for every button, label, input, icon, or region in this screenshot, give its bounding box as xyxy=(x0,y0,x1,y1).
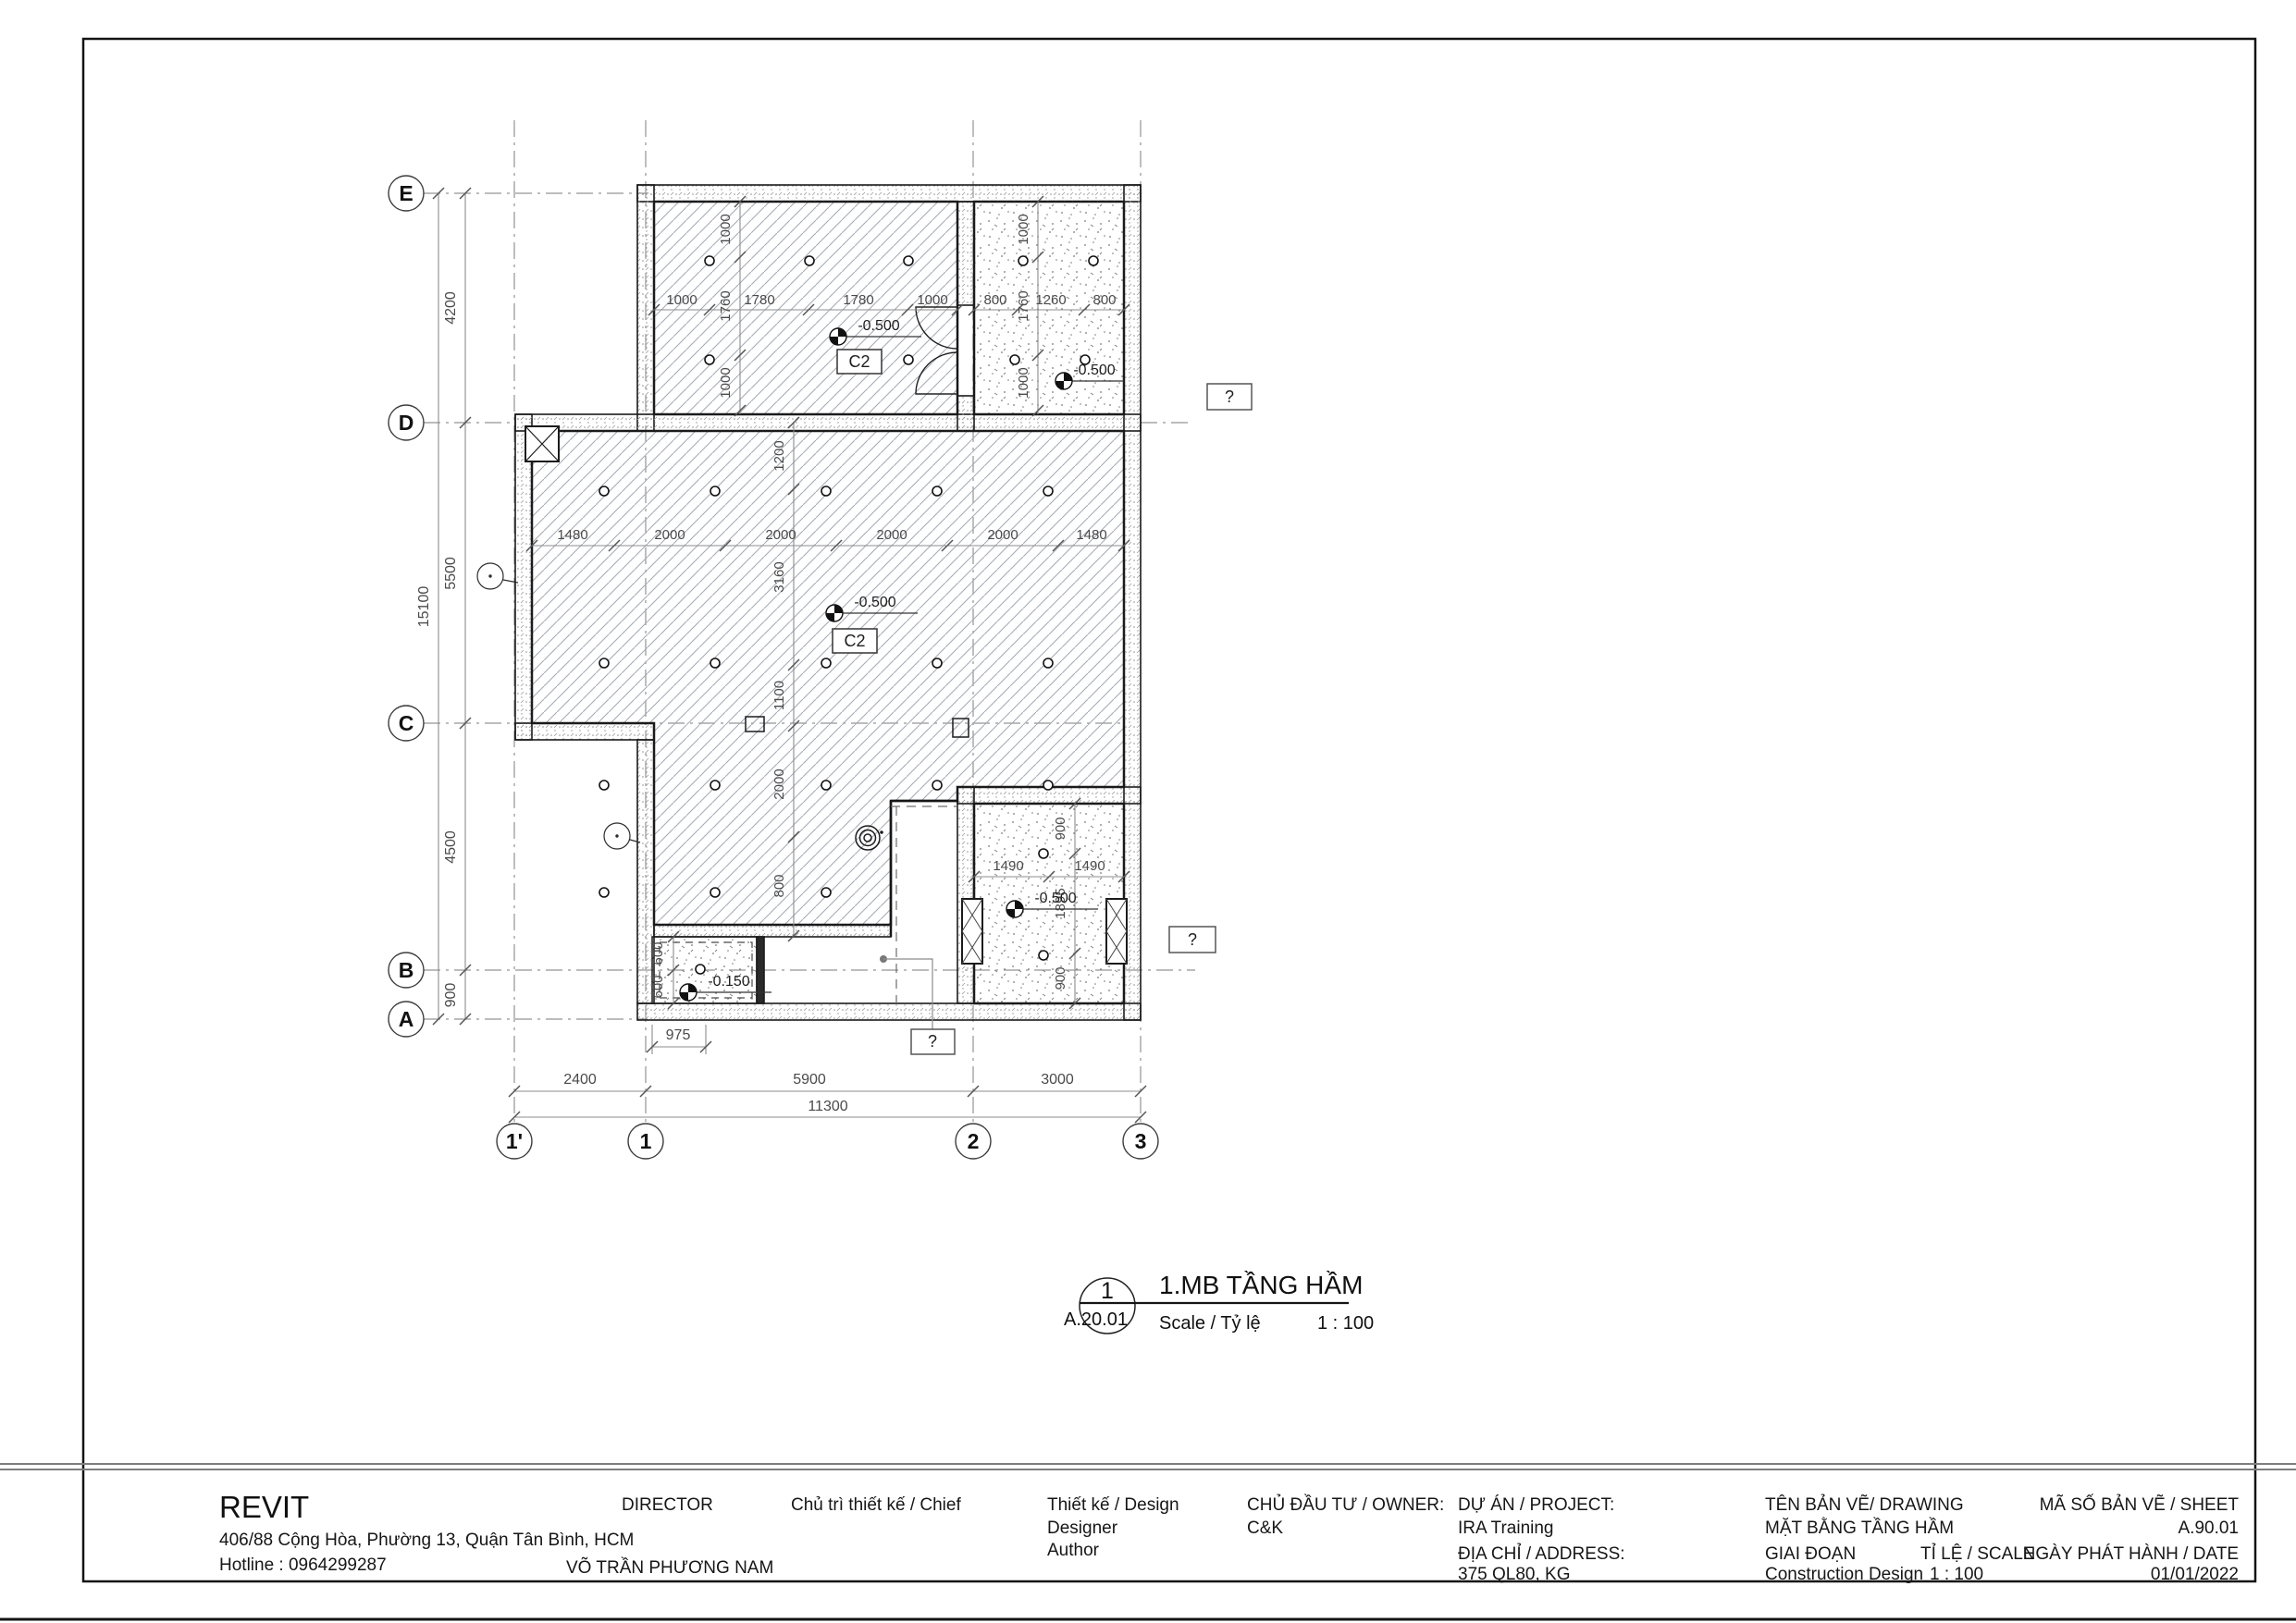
dim-hall-v1: 3160 xyxy=(772,561,787,592)
designer-label: Designer xyxy=(1047,1518,1118,1538)
grid-bubble-1: 1 xyxy=(640,1129,652,1153)
view-sheet-ref: A.20.01 xyxy=(1064,1309,1128,1330)
dim-tl-h2: 1780 xyxy=(843,292,873,308)
dim-tl-h3: 1000 xyxy=(917,292,947,308)
dim-975: 975 xyxy=(666,1027,691,1043)
wall-topblock-left xyxy=(637,185,654,431)
phase-value: Construction Design xyxy=(1765,1565,1923,1584)
date-label: NGÀY PHÁT HÀNH / DATE xyxy=(2023,1544,2239,1564)
project-name: IRA Training xyxy=(1458,1518,1554,1538)
dim-br-v2: 900 xyxy=(1053,966,1068,990)
dim-tr-h1: 1260 xyxy=(1035,292,1066,308)
wall-partition-lower xyxy=(957,396,974,431)
wall-tag-circle-2 xyxy=(604,823,640,849)
grid-bubble-D: D xyxy=(399,411,414,435)
question-tag-1: ? xyxy=(1225,387,1234,406)
owner-name: C&K xyxy=(1247,1518,1283,1538)
company-hotline: Hotline : 0964299287 xyxy=(219,1555,387,1575)
level-top-right: -0.500 xyxy=(1073,363,1115,378)
dim-hall-v0: 1200 xyxy=(772,440,787,471)
author-label: Author xyxy=(1047,1541,1100,1560)
dim-left-0: 4200 xyxy=(443,291,459,325)
dim-br-h0: 1490 xyxy=(993,858,1023,874)
grid-bubble-3: 3 xyxy=(1135,1129,1147,1153)
dim-hall-h0: 1480 xyxy=(557,527,587,543)
project-label: DỰ ÁN / PROJECT: xyxy=(1458,1495,1614,1515)
level-top-left: -0.500 xyxy=(858,318,899,334)
vent-louver-right xyxy=(1106,899,1127,964)
dim-bottom-0: 2400 xyxy=(563,1072,597,1088)
dim-br-v0: 900 xyxy=(1053,817,1068,840)
dim-hall-h1: 2000 xyxy=(654,527,685,543)
dim-left-1: 5500 xyxy=(443,557,459,590)
dim-hall-v3: 2000 xyxy=(772,768,787,799)
dim-hall-h2: 2000 xyxy=(765,527,796,543)
dim-hall-h5: 1480 xyxy=(1076,527,1106,543)
wall-bottom xyxy=(637,1003,1141,1020)
dim-tr-h2: 800 xyxy=(1092,292,1116,308)
floor-areas xyxy=(532,202,1124,1003)
address-value: 375 QL80, KG xyxy=(1458,1565,1570,1584)
dim-pit-v0: 600 xyxy=(650,941,666,965)
wall-top xyxy=(637,185,1141,202)
owner-label: CHỦ ĐẦU TƯ / OWNER: xyxy=(1247,1494,1444,1515)
level-hall: -0.500 xyxy=(854,595,895,610)
dim-tl-v1: 1760 xyxy=(718,290,734,321)
dim-bottom-1: 5900 xyxy=(793,1072,826,1088)
dim-tr-v1: 1760 xyxy=(1016,290,1031,321)
dim-hall-v2: 1100 xyxy=(772,681,787,710)
scale-value: 1 : 100 xyxy=(1930,1565,1983,1584)
title-block: REVIT 406/88 Cộng Hòa, Phường 13, Quận T… xyxy=(219,1490,2239,1584)
wall-tag-circle-1 xyxy=(477,563,518,589)
date-value: 01/01/2022 xyxy=(2151,1565,2239,1584)
sheet-border xyxy=(83,39,2255,1581)
wall-step-c xyxy=(515,723,654,740)
sheet-label: MÃ SỐ BẢN VẼ / SHEET xyxy=(2040,1494,2240,1515)
wall-room-br-left xyxy=(957,787,974,1003)
director-label: DIRECTOR xyxy=(622,1495,713,1515)
wall-left-mid xyxy=(515,414,532,740)
view-title-text: 1.MB TẦNG HẦM xyxy=(1159,1271,1363,1299)
dim-tl-v2: 1000 xyxy=(718,367,734,398)
column-tag-1: C2 xyxy=(848,352,870,371)
phase-label: GIAI ĐOẠN xyxy=(1765,1544,1856,1564)
view-scale-value: 1 : 100 xyxy=(1317,1313,1374,1334)
view-title: 1 A.20.01 1.MB TẦNG HẦM Scale / Tỷ lệ 1 … xyxy=(1064,1271,1374,1334)
drawing-name: MẶT BẰNG TẦNG HẦM xyxy=(1765,1518,1954,1538)
room-top-right-floor xyxy=(974,202,1124,414)
level-pit: -0.150 xyxy=(708,974,749,990)
view-number: 1 xyxy=(1101,1278,1114,1304)
chief-name: VÕ TRẦN PHƯƠNG NAM xyxy=(566,1557,773,1578)
basement-plan-drawing: 15100 4200 5500 4500 900 2400 5900 3000 … xyxy=(0,0,2296,1623)
shaft-column-box xyxy=(525,426,559,461)
grid-bubble-B: B xyxy=(399,958,414,982)
dim-tr-v2: 1000 xyxy=(1016,367,1031,398)
grid-bubble-E: E xyxy=(399,181,413,205)
dim-bottom-overall: 11300 xyxy=(808,1099,847,1114)
dim-hall-h3: 2000 xyxy=(876,527,907,543)
chief-label: Chủ trì thiết kế / Chief xyxy=(791,1495,961,1515)
dim-left-2: 4500 xyxy=(443,830,459,864)
sheet-frame xyxy=(0,39,2296,1619)
dim-hall-h4: 2000 xyxy=(987,527,1018,543)
dim-tr-v0: 1000 xyxy=(1016,214,1031,244)
scale-label: TỈ LỆ / SCALE xyxy=(1920,1543,2035,1564)
drawing-label: TÊN BẢN VẼ/ DRAWING xyxy=(1765,1494,1964,1515)
column-on-grid-c-2 xyxy=(953,719,969,737)
dim-pit-v1: 600 xyxy=(650,975,666,998)
address-label: ĐỊA CHỈ / ADDRESS: xyxy=(1458,1543,1625,1564)
room-top-left-floor xyxy=(654,202,957,414)
grid-bubble-1p: 1' xyxy=(506,1129,523,1153)
dim-tl-v0: 1000 xyxy=(718,214,734,244)
question-tag-3: ? xyxy=(928,1032,937,1051)
column-on-grid-c-1 xyxy=(746,717,764,732)
grid-bubble-2: 2 xyxy=(968,1129,980,1153)
grid-bubble-A: A xyxy=(399,1007,414,1031)
question-tag-2: ? xyxy=(1188,930,1197,949)
grid-bubble-C: C xyxy=(399,711,414,735)
company-logo-text: REVIT xyxy=(219,1490,309,1524)
dim-br-h1: 1490 xyxy=(1074,858,1105,874)
column-tag-2: C2 xyxy=(844,632,865,650)
dim-tl-h1: 1780 xyxy=(744,292,774,308)
dim-left-3: 900 xyxy=(443,983,459,1008)
wall-partition-upper xyxy=(957,202,974,305)
dim-tl-h0: 1000 xyxy=(666,292,697,308)
wall-slab-edge xyxy=(654,925,891,937)
wall-pit-right xyxy=(757,937,764,1003)
dim-hall-v4: 800 xyxy=(772,874,787,897)
drawing-sheet: 15100 4200 5500 4500 900 2400 5900 3000 … xyxy=(0,0,2296,1623)
wall-right xyxy=(1124,185,1141,1020)
wall-grid-d xyxy=(515,414,1141,431)
dim-tr-h0: 800 xyxy=(983,292,1006,308)
level-bottom-right: -0.500 xyxy=(1034,891,1076,906)
dim-left-overall: 15100 xyxy=(416,586,432,628)
vent-louver-left xyxy=(962,899,982,964)
stair-void-edge xyxy=(891,801,957,937)
dim-bottom-2: 3000 xyxy=(1041,1072,1074,1088)
view-scale-label: Scale / Tỷ lệ xyxy=(1159,1313,1261,1334)
design-label: Thiết kế / Design xyxy=(1047,1495,1179,1515)
sheet-number: A.90.01 xyxy=(2179,1518,2240,1538)
stair-void-dashed xyxy=(891,806,957,1003)
company-address: 406/88 Cộng Hòa, Phường 13, Quận Tân Bìn… xyxy=(219,1531,634,1550)
